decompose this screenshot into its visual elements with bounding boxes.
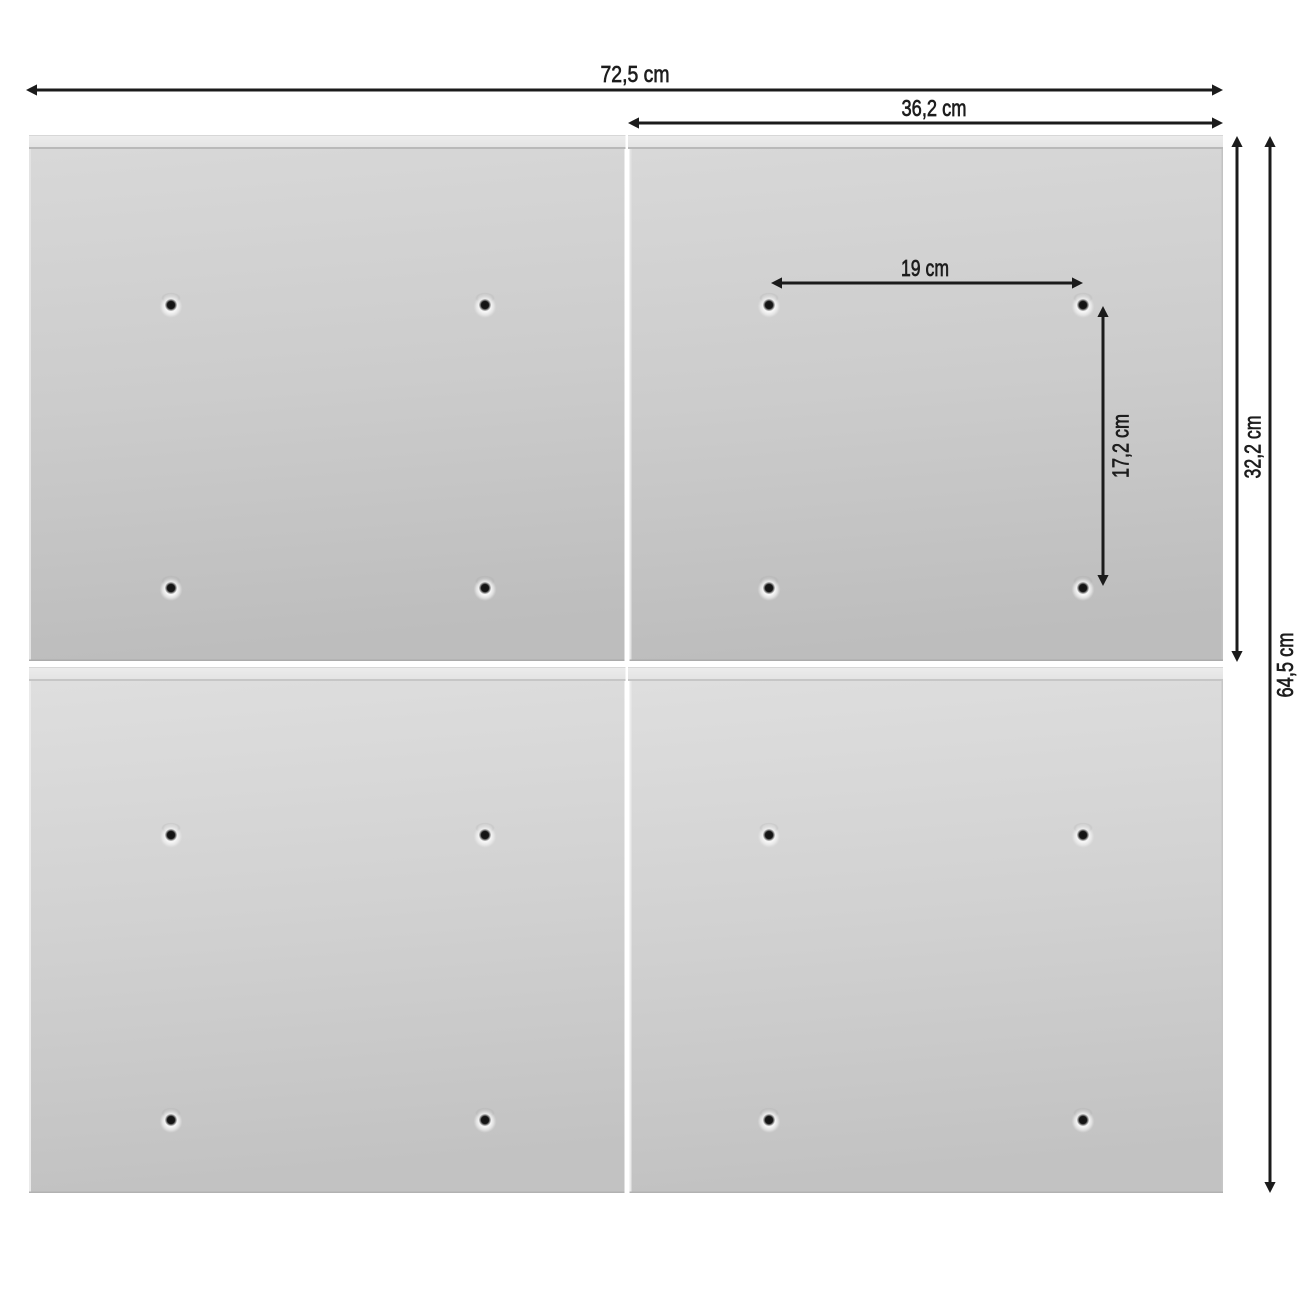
svg-text:36,2 cm: 36,2 cm [902,95,967,121]
svg-text:64,5 cm: 64,5 cm [1272,633,1298,698]
svg-text:32,2 cm: 32,2 cm [1240,416,1266,479]
svg-text:19 cm: 19 cm [901,255,949,281]
svg-text:72,5 cm: 72,5 cm [601,61,670,87]
svg-text:17,2 cm: 17,2 cm [1108,414,1134,478]
